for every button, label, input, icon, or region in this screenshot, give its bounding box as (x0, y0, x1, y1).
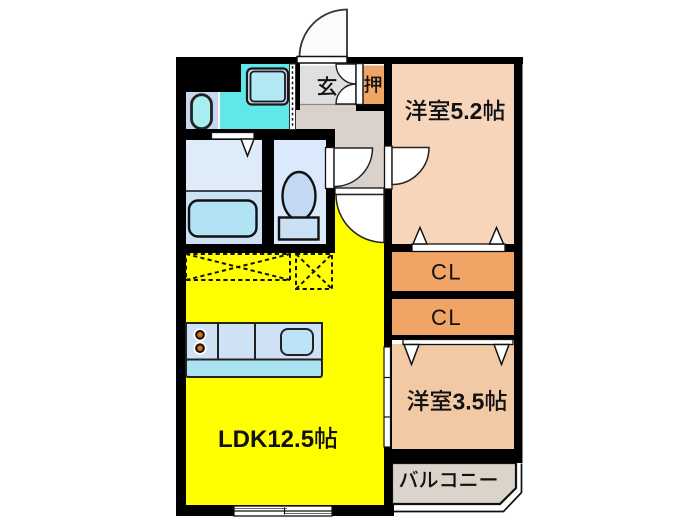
svg-text:LDK12.5: LDK12.5 (218, 426, 314, 453)
svg-text:CL: CL (431, 260, 462, 285)
svg-text:CL: CL (431, 305, 462, 330)
svg-text:3.5: 3.5 (453, 388, 485, 414)
svg-text:5.2: 5.2 (451, 98, 483, 124)
